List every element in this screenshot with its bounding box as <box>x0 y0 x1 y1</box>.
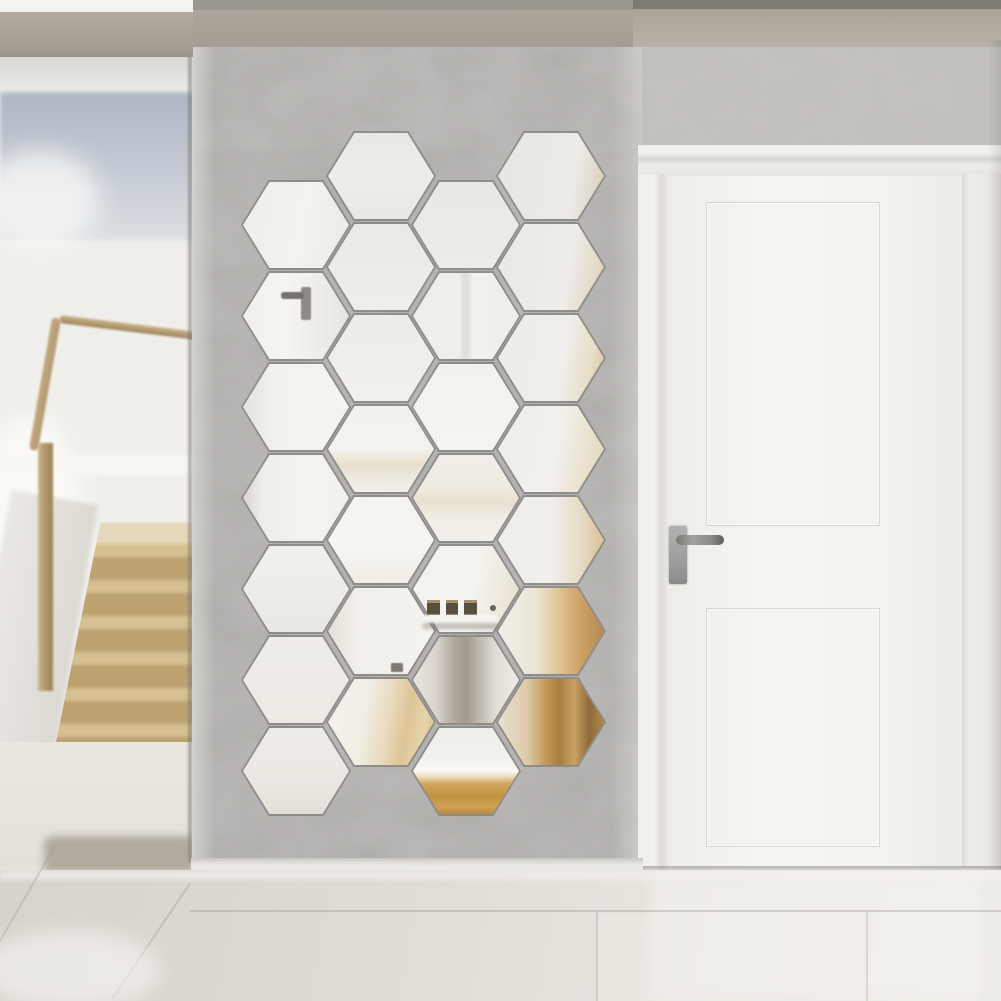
stair-tread <box>52 652 195 665</box>
wallpaper-wall <box>193 44 642 864</box>
wallpaper-above-door <box>642 44 1001 148</box>
wallpaper-edge-light <box>193 44 215 864</box>
door-panel-upper <box>706 202 880 526</box>
wallpaper-texture <box>193 44 642 864</box>
door-panel-lower <box>706 608 880 847</box>
right-edge-vignette <box>988 40 1001 870</box>
ceiling-beam-left <box>0 12 193 57</box>
hall-floor <box>0 870 1001 1001</box>
door-frame-top <box>638 145 1001 176</box>
door-handle-lever <box>676 535 724 545</box>
door <box>668 176 962 874</box>
stair-handrail <box>59 315 197 340</box>
wall-shading <box>0 56 197 98</box>
distant-ledge-highlight <box>0 455 197 475</box>
ceiling-beam-right <box>633 9 1001 47</box>
wallpaper-texture <box>642 44 1001 148</box>
stair-riser <box>52 665 195 688</box>
door-frame-left-jamb <box>638 174 668 876</box>
stair-tread <box>52 688 195 701</box>
ceiling-beam-mid <box>193 10 633 47</box>
stair-riser <box>52 701 195 724</box>
stair-tread <box>52 724 195 737</box>
floor-light-glow <box>0 930 160 1001</box>
adjacent-room-view <box>0 0 197 1001</box>
floor-tile-seam-vertical <box>866 912 868 1001</box>
floor-tile-patch <box>598 914 866 1001</box>
hallway-product-photo <box>0 0 1001 1001</box>
newel-post <box>38 443 53 691</box>
